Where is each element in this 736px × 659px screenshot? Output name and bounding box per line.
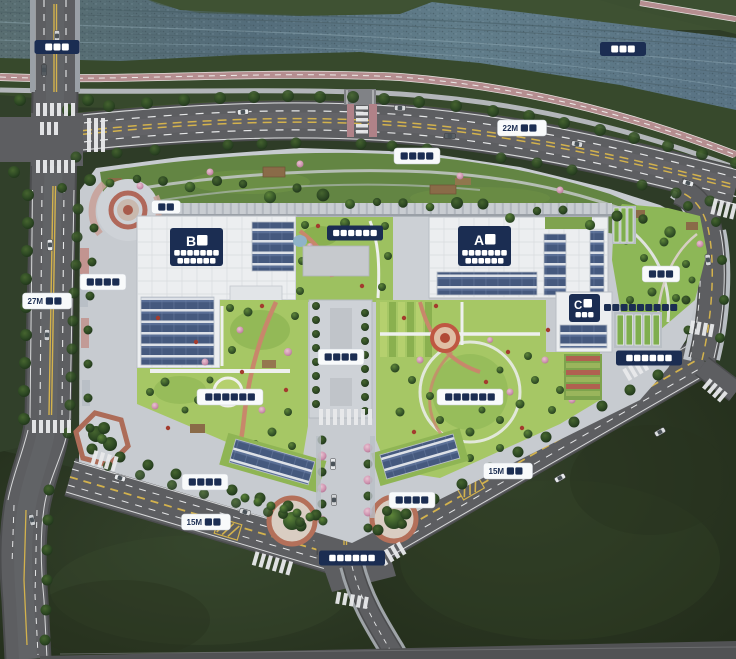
svg-text:27M: 27M: [28, 297, 44, 306]
svg-text:15M: 15M: [187, 518, 203, 527]
svg-text:15M: 15M: [489, 467, 505, 476]
svg-text:B: B: [186, 233, 196, 249]
svg-text:C: C: [574, 300, 582, 312]
svg-text:A: A: [474, 232, 484, 248]
svg-text:22M: 22M: [503, 124, 519, 133]
